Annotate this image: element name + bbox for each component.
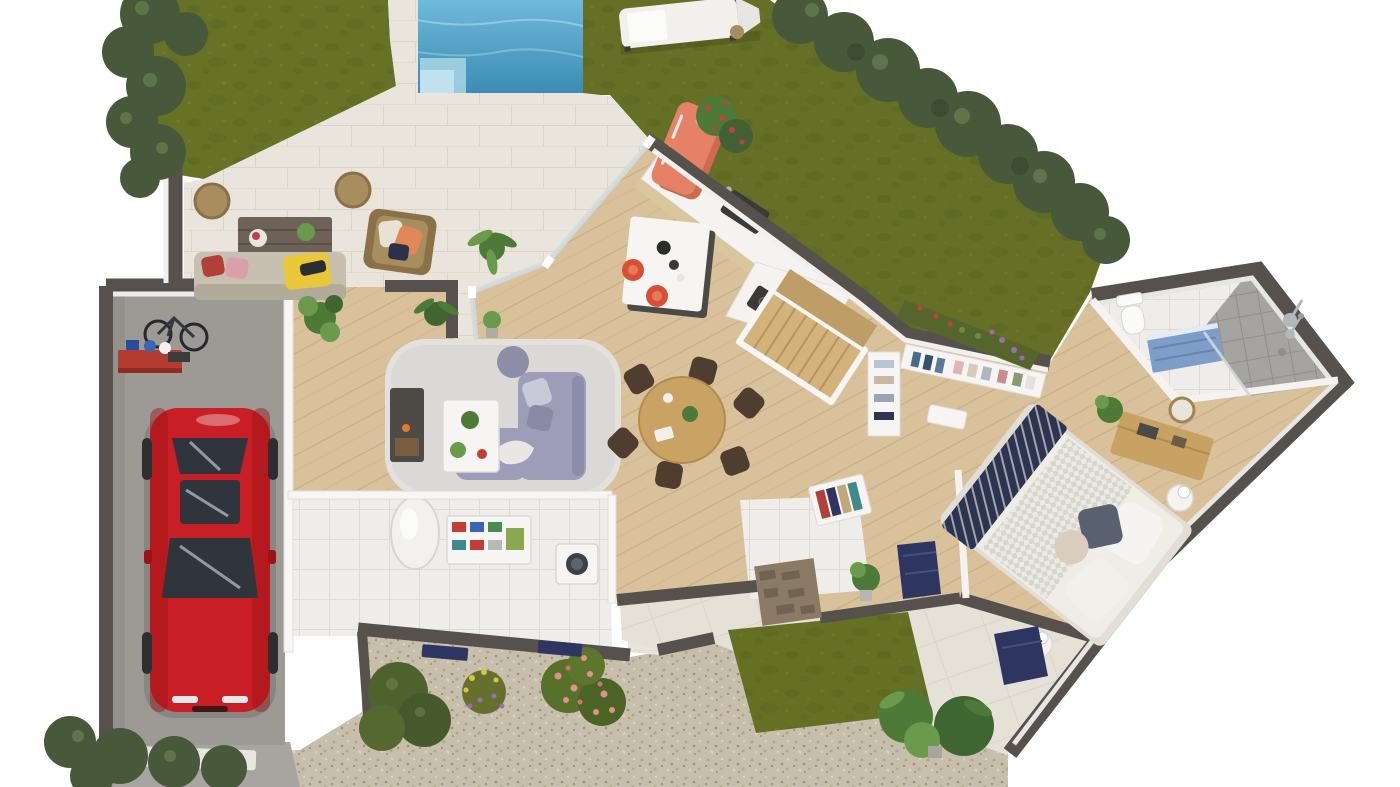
coffee-table (443, 400, 499, 472)
red-pillow (200, 254, 225, 278)
rattan-armchair (362, 208, 438, 277)
green-crate (506, 528, 524, 550)
tool-tray (168, 352, 190, 362)
bedside-lamp-2 (1178, 486, 1190, 498)
round-mirror (1170, 398, 1194, 422)
swimming-pool (418, 0, 583, 93)
storage-shelf (447, 516, 531, 564)
table-plant (461, 411, 479, 429)
headlight-2 (222, 696, 248, 703)
dining-table (639, 377, 725, 463)
side-mirror (144, 550, 152, 564)
utility-partition-n (288, 491, 612, 499)
fire-glow (402, 424, 410, 432)
red-bowl (477, 449, 487, 459)
firewood (395, 438, 419, 456)
garage-partition (284, 290, 293, 652)
centerpiece-plant (682, 406, 698, 422)
headlight (172, 696, 198, 703)
towel (627, 9, 668, 43)
red-car (142, 408, 278, 718)
plate (663, 393, 673, 403)
porch-stone-wall (754, 558, 822, 626)
plant-pot (928, 746, 942, 758)
grille (192, 706, 228, 712)
garden-pouf (730, 25, 744, 39)
living-room (388, 342, 618, 494)
rattan-pouf-2 (336, 173, 370, 207)
outdoor-sofa (194, 252, 346, 300)
rattan-pouf (195, 184, 229, 218)
washing-machine (556, 544, 598, 584)
utility-partition-e (608, 495, 616, 603)
pouf (497, 346, 529, 378)
tool-box (126, 340, 139, 350)
floorplan-render: 3D rendered ground-floor plan with garde… (0, 0, 1400, 787)
shower-drain (1278, 348, 1286, 356)
lavender-pot (297, 223, 315, 241)
pink-pillow (225, 257, 250, 280)
table-plant-2 (450, 442, 466, 458)
paint-can-blue (144, 340, 156, 352)
